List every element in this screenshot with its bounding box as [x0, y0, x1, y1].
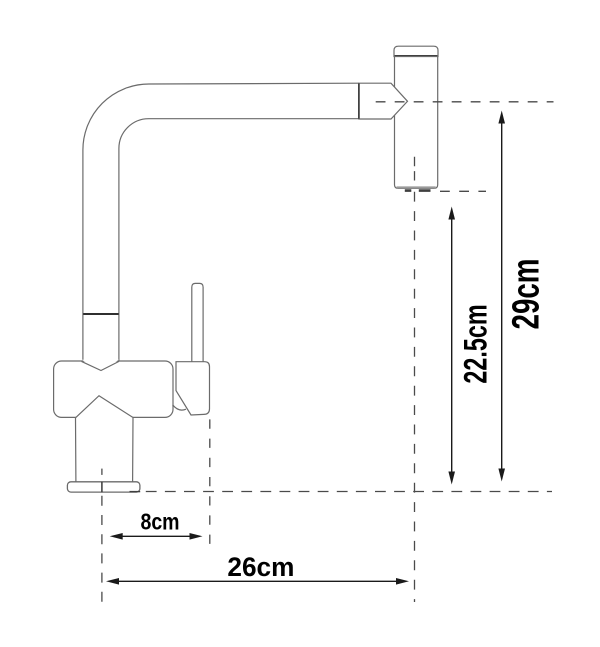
svg-text:29cm: 29cm [505, 259, 547, 330]
svg-text:26cm: 26cm [227, 552, 294, 582]
svg-text:22.5cm: 22.5cm [458, 304, 493, 383]
svg-text:8cm: 8cm [140, 509, 179, 535]
